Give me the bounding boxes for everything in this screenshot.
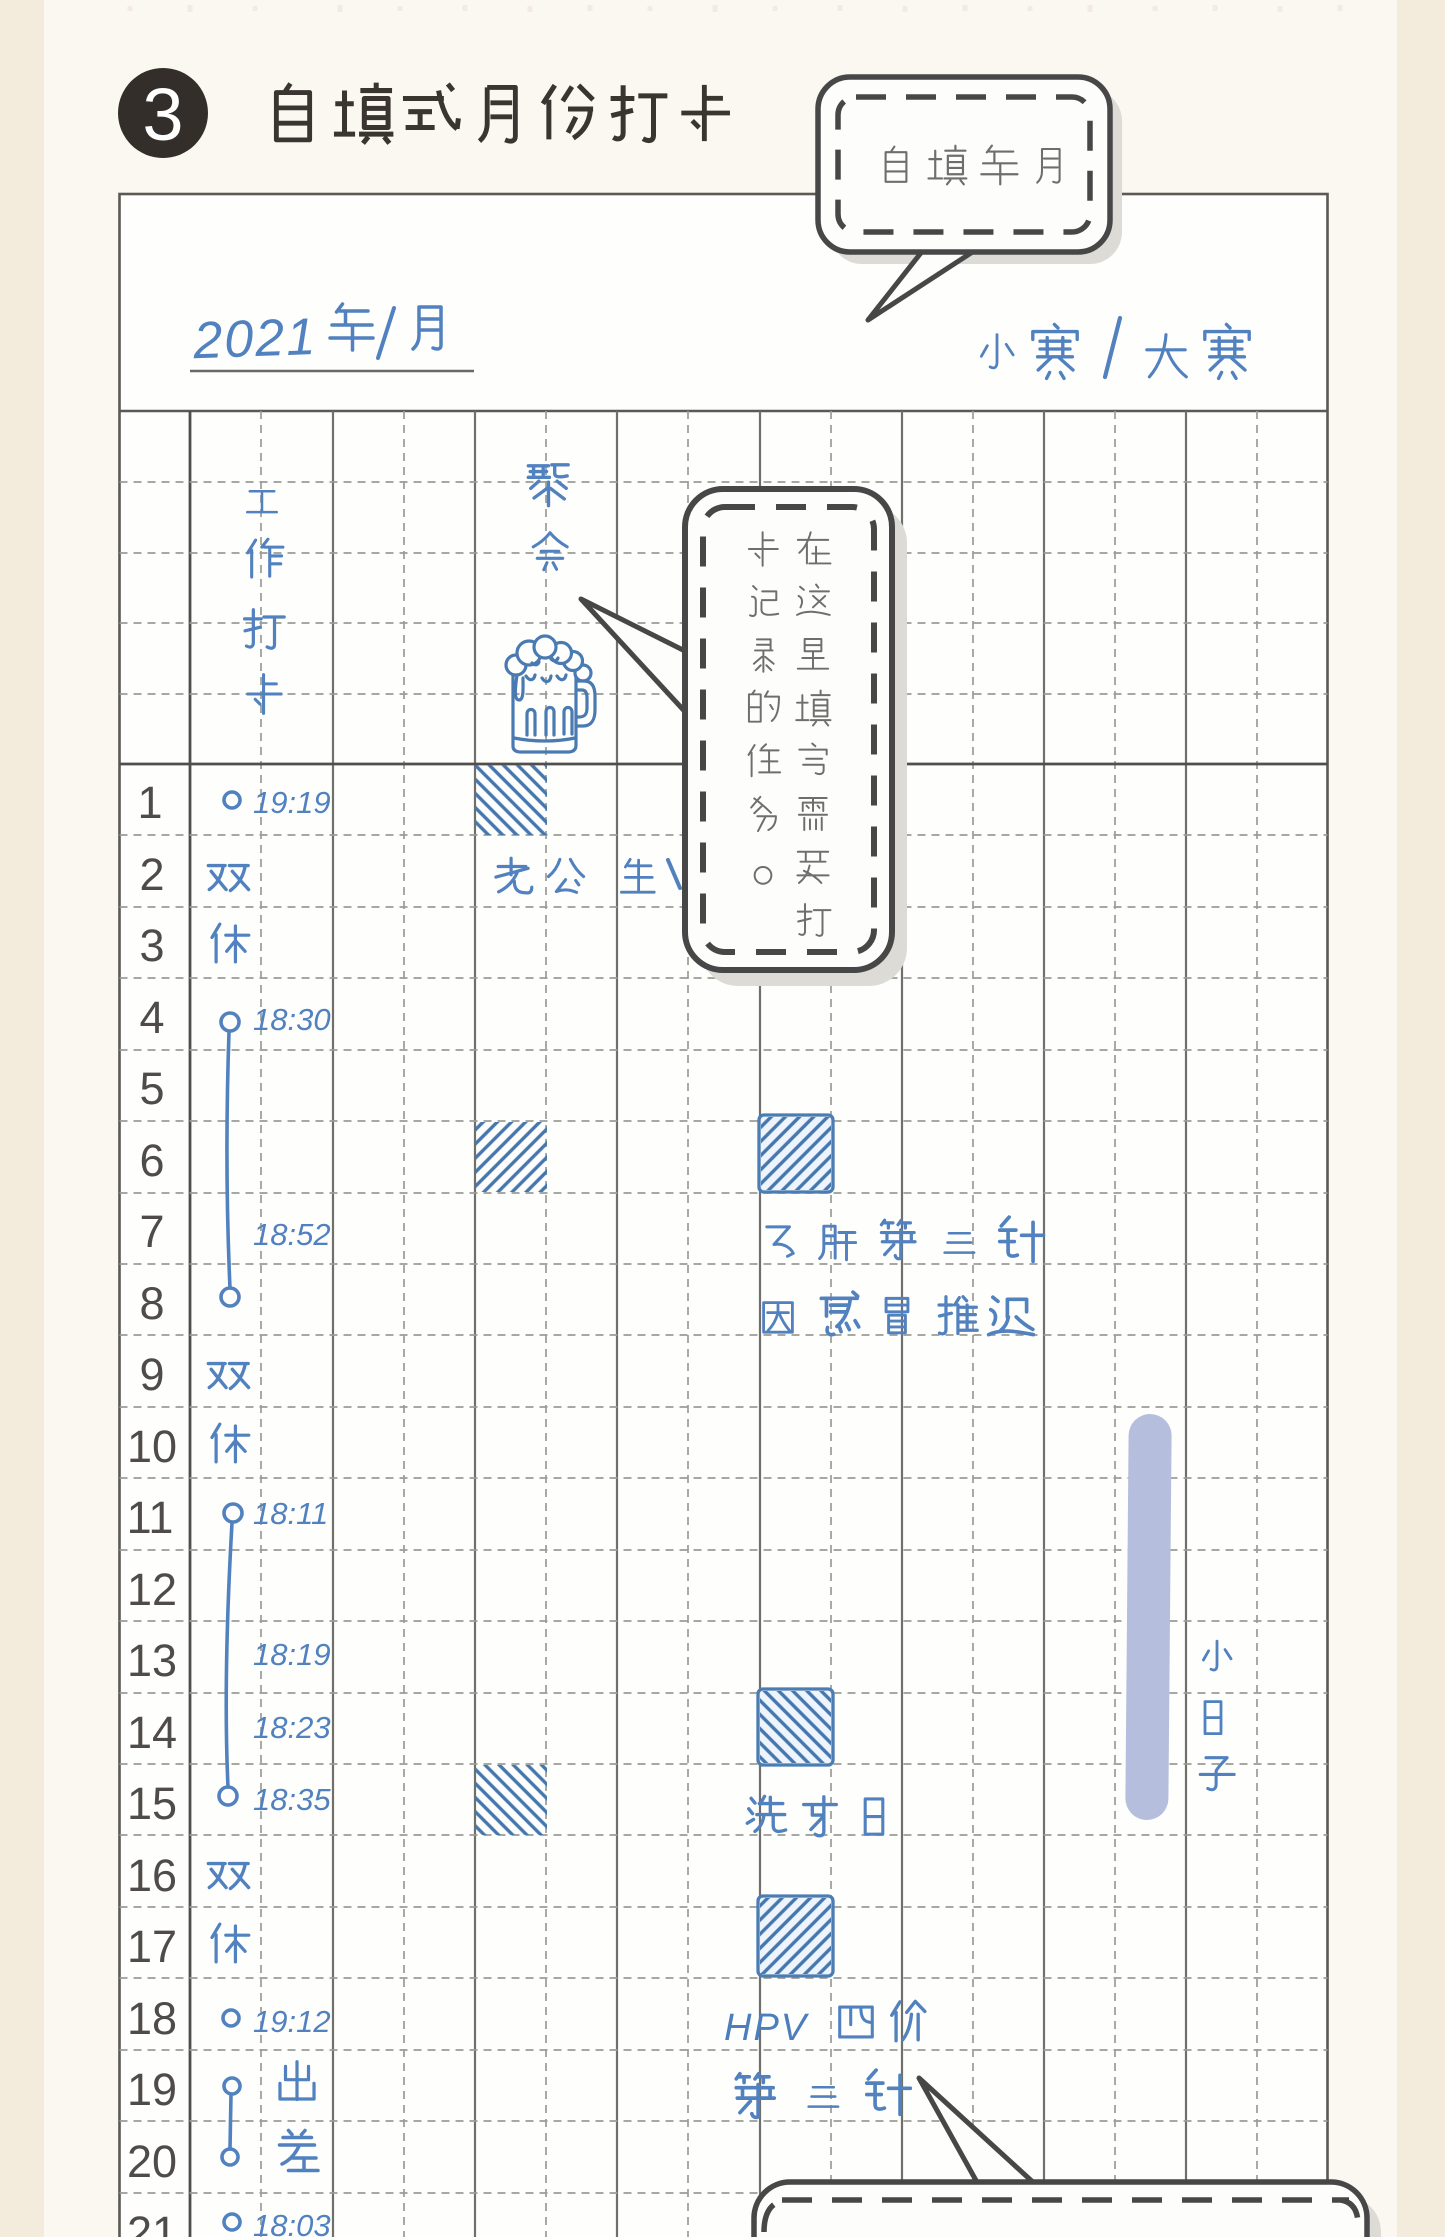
svg-text:21: 21 bbox=[127, 2207, 177, 2237]
svg-text:18: 18 bbox=[127, 1993, 177, 2044]
svg-text:17: 17 bbox=[127, 1921, 177, 1972]
svg-text:18:03: 18:03 bbox=[253, 2208, 331, 2237]
svg-text:3: 3 bbox=[139, 920, 164, 971]
svg-text:10: 10 bbox=[127, 1421, 177, 1472]
svg-text:15: 15 bbox=[127, 1778, 177, 1829]
svg-text:19:12: 19:12 bbox=[253, 2004, 331, 2039]
svg-text:18:35: 18:35 bbox=[253, 1782, 331, 1817]
svg-text:11: 11 bbox=[127, 1492, 174, 1543]
svg-text:5: 5 bbox=[139, 1063, 164, 1114]
svg-text:16: 16 bbox=[127, 1850, 177, 1901]
svg-text:8: 8 bbox=[139, 1278, 164, 1329]
svg-text:18:30: 18:30 bbox=[253, 1002, 331, 1037]
svg-text:18:23: 18:23 bbox=[253, 1710, 331, 1745]
svg-text:6: 6 bbox=[139, 1135, 164, 1186]
svg-text:18:19: 18:19 bbox=[253, 1637, 331, 1672]
svg-text:19:19: 19:19 bbox=[253, 785, 331, 820]
svg-text:19: 19 bbox=[127, 2064, 177, 2115]
svg-text:12: 12 bbox=[127, 1564, 177, 1615]
svg-text:13: 13 bbox=[127, 1635, 177, 1686]
svg-text:18:11: 18:11 bbox=[253, 1496, 328, 1531]
svg-text:7: 7 bbox=[139, 1206, 164, 1257]
svg-text:14: 14 bbox=[127, 1707, 177, 1758]
svg-text:HPV: HPV bbox=[724, 2007, 810, 2049]
svg-text:20: 20 bbox=[127, 2136, 177, 2187]
svg-text:2021: 2021 bbox=[191, 308, 318, 370]
svg-text:1: 1 bbox=[137, 777, 162, 828]
svg-text:4: 4 bbox=[139, 992, 164, 1043]
svg-text:9: 9 bbox=[139, 1349, 164, 1400]
svg-text:3: 3 bbox=[142, 73, 183, 156]
svg-text:18:52: 18:52 bbox=[253, 1217, 331, 1252]
svg-text:2: 2 bbox=[139, 849, 164, 900]
